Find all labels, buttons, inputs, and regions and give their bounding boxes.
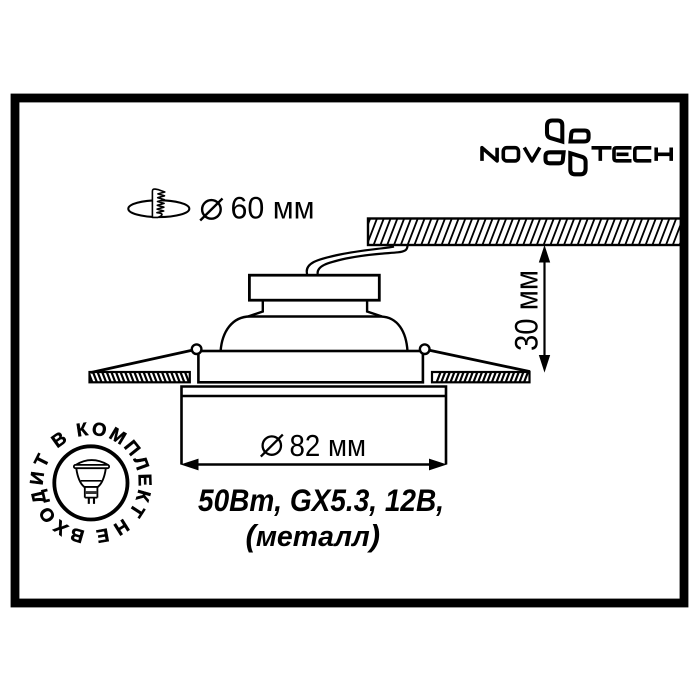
svg-text:60 мм: 60 мм <box>231 190 315 226</box>
svg-text:(меmалл): (меmалл) <box>246 518 381 553</box>
svg-text:30 мм: 30 мм <box>508 270 544 351</box>
svg-text:82 мм: 82 мм <box>290 429 367 463</box>
svg-text:50Вm, GX5.3, 12В,: 50Вm, GX5.3, 12В, <box>198 482 444 518</box>
